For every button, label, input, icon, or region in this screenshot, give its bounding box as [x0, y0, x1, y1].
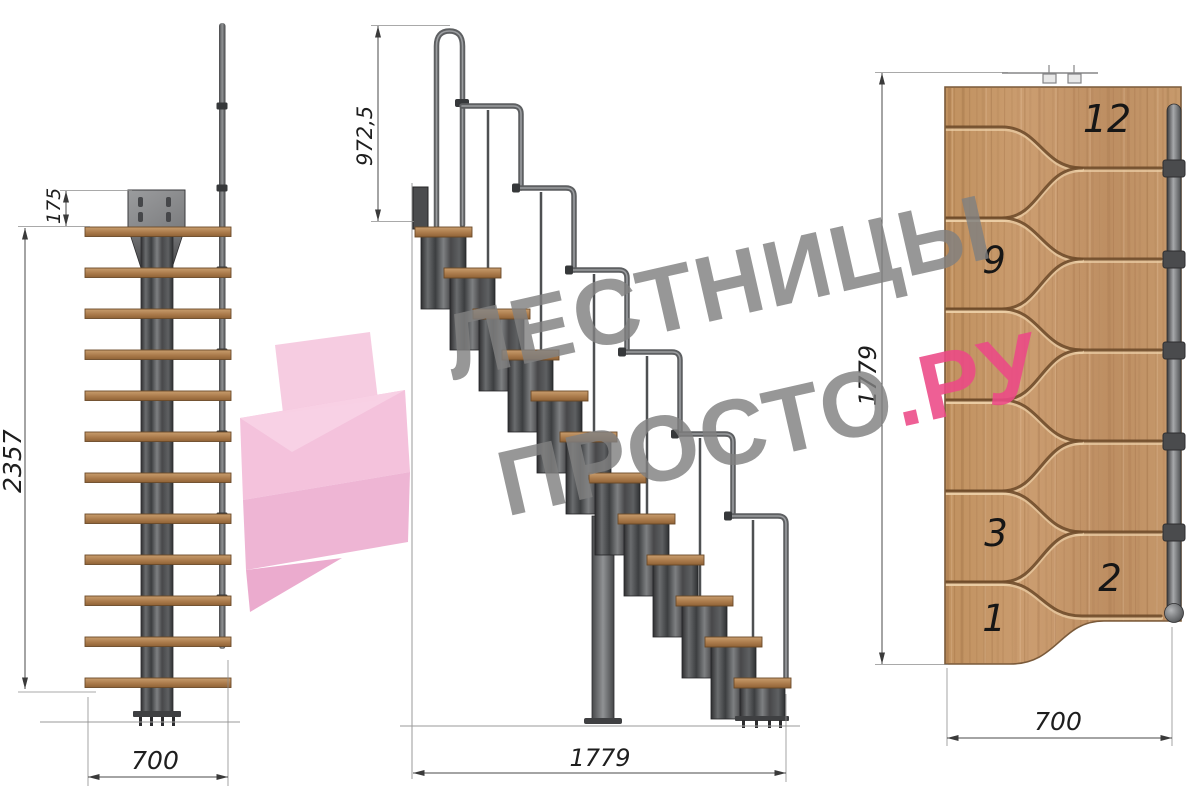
- tread-number-3: 3: [984, 512, 1008, 555]
- tread-number-1: 1: [982, 597, 1006, 640]
- front-view: [18, 23, 240, 786]
- side-view: [371, 26, 800, 783]
- side-length-dim: 1779: [569, 744, 630, 772]
- front-width-dim: 700: [131, 746, 179, 775]
- plan-view: [875, 65, 1185, 746]
- tread-number-12: 12: [1083, 97, 1131, 141]
- plan-width-dim: 700: [1034, 707, 1082, 736]
- stairs-technical-drawing: 175 2357 700 972,5 1779 1779 700 12 9 3 …: [0, 0, 1200, 790]
- blueprint-canvas: 175 2357 700 972,5 1779 1779 700 12 9 3 …: [0, 0, 1200, 790]
- plan-length-dim: 1779: [854, 345, 882, 406]
- tread-number-9: 9: [982, 239, 1006, 282]
- side-handrail-height-dim: 972,5: [353, 106, 377, 166]
- front-total-height-dim: 2357: [0, 429, 27, 493]
- front-plate-offset-dim: 175: [43, 188, 65, 224]
- tread-number-2: 2: [1098, 557, 1122, 600]
